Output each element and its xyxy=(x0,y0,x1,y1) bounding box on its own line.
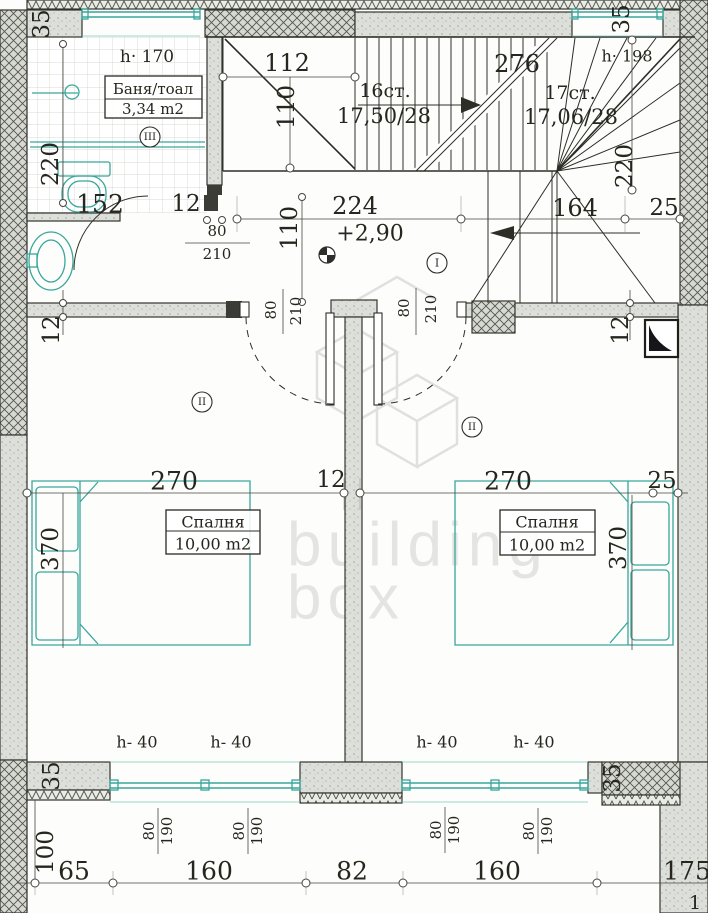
window-h-4: 190 xyxy=(538,817,556,846)
dim-82: 82 xyxy=(336,857,368,886)
hall-jamb-block xyxy=(204,195,218,211)
stairs-headroom: h· 198 xyxy=(601,47,652,66)
bathroom-area: 3,34 m2 xyxy=(122,100,184,118)
bottom-wall-center-pier xyxy=(300,762,402,793)
central-partition-wall xyxy=(345,317,362,762)
bathroom-ceiling-height: h· 170 xyxy=(120,47,174,67)
bed-left xyxy=(32,481,250,645)
dim-160-right: 160 xyxy=(473,857,521,886)
dim-220-bathroom: 220 xyxy=(38,142,64,186)
dim-110-hall: 110 xyxy=(277,206,303,250)
window-w-1: 80 xyxy=(140,821,158,840)
right-wall-mid xyxy=(678,305,708,762)
bedroom-left-name: Спалня xyxy=(181,513,244,532)
door-width-bathroom: 80 xyxy=(207,222,226,240)
insulation-strip-top xyxy=(27,0,695,9)
door-leaf-right xyxy=(374,313,382,405)
window-sill-label-1: h- 40 xyxy=(116,733,157,752)
bathroom-name: Баня/тоал xyxy=(113,80,193,98)
bathroom-zone: III xyxy=(144,131,156,143)
window-w-2: 80 xyxy=(230,821,248,840)
top-wall-center-left xyxy=(205,10,355,37)
bedroom-left-area: 10,00 m2 xyxy=(175,535,251,554)
window-sill-line xyxy=(110,762,300,802)
hall-level: +2,90 xyxy=(336,222,403,247)
left-wall-upper xyxy=(0,10,27,435)
stair-lower-diagonals xyxy=(472,171,655,303)
hall-zone: I xyxy=(435,257,439,270)
dim-270-left: 270 xyxy=(150,467,198,496)
window-h-2: 190 xyxy=(248,817,266,846)
dim-220-stair: 220 xyxy=(612,144,638,188)
door-frame xyxy=(240,302,249,317)
stairs-a-steps: 16ст. xyxy=(359,80,410,102)
dim-100: 100 xyxy=(33,830,59,874)
window-w-3: 80 xyxy=(427,820,445,839)
floor-plan-sheet: building box xyxy=(0,0,708,913)
hall-masonry-pier xyxy=(472,301,515,333)
insulation-bottom-center xyxy=(300,793,402,803)
dim-175: 175 xyxy=(663,857,708,886)
dim-370-left: 370 xyxy=(38,527,64,571)
stair-direction-arrow-down xyxy=(490,226,514,240)
bedroom-left-zone: II xyxy=(198,396,206,408)
door-width-right: 80 xyxy=(395,298,413,317)
stairs-b-rise-run: 17,06/28 xyxy=(524,105,618,129)
dim-35-bottom-left: 35 xyxy=(39,761,65,790)
dim-12-left-wall: 12 xyxy=(39,315,65,344)
dim-152: 152 xyxy=(76,190,124,219)
stair-treads-lower xyxy=(488,171,557,303)
dim-35-top-left: 35 xyxy=(29,9,55,38)
right-wall-upper xyxy=(680,0,708,305)
window-sill-label-2: h- 40 xyxy=(210,733,251,752)
window-h-3: 190 xyxy=(445,816,463,845)
window-sill-label-3: h- 40 xyxy=(416,733,457,752)
stairs-b-steps: 17ст. xyxy=(544,82,595,104)
hall-south-wall-left xyxy=(27,303,240,317)
dim-12-center: 12 xyxy=(316,467,345,493)
sheet-number: 1 xyxy=(689,892,701,913)
door-height-left: 210 xyxy=(287,297,305,326)
window-sill-label-4: h- 40 xyxy=(513,733,554,752)
dim-164: 164 xyxy=(552,194,598,222)
window-sill-line xyxy=(402,762,588,802)
central-t-pier xyxy=(331,300,377,317)
dim-25-hall: 25 xyxy=(649,195,678,221)
dim-370-right: 370 xyxy=(606,526,632,570)
bedroom-right-name: Спалня xyxy=(515,513,578,532)
dim-35-bottom-right: 35 xyxy=(600,763,626,792)
left-wall-lower xyxy=(0,760,27,913)
stairs-a-rise-run: 17,50/28 xyxy=(337,104,431,128)
dim-12-bathroom: 12 xyxy=(171,191,200,217)
sink-basin xyxy=(29,232,73,290)
door-width-left: 80 xyxy=(262,300,280,319)
bedroom-right-area: 10,00 m2 xyxy=(509,536,585,555)
window-top-left xyxy=(82,12,200,17)
dim-276: 276 xyxy=(494,50,540,78)
window-h-1: 190 xyxy=(158,817,176,846)
dim-110-stair: 110 xyxy=(274,85,300,129)
window-bottom-right xyxy=(402,783,588,788)
door-leaf-left xyxy=(326,313,334,405)
door-height-bathroom: 210 xyxy=(203,245,232,263)
floor-plan-drawing: building box xyxy=(0,0,708,913)
door-swing-left xyxy=(246,316,334,404)
bedroom-right-zone: II xyxy=(468,421,476,433)
window-w-4: 80 xyxy=(520,821,538,840)
left-wall-mid xyxy=(0,435,27,760)
partition-end-cap xyxy=(207,185,222,195)
sink-basin-inner xyxy=(37,240,65,282)
top-wall-center-right xyxy=(355,12,572,37)
dim-35-top-right: 35 xyxy=(609,4,635,33)
dim-270-right: 270 xyxy=(484,467,532,496)
dim-160-left: 160 xyxy=(185,857,233,886)
door-height-right: 210 xyxy=(422,295,440,324)
bathroom-stair-partition xyxy=(207,37,222,185)
door-frame xyxy=(457,302,466,317)
insulation-bottom-right xyxy=(602,795,680,805)
dim-224: 224 xyxy=(332,192,378,220)
window-bottom-left xyxy=(110,783,300,788)
dim-12-right-wall: 12 xyxy=(608,315,634,344)
dim-25-bedroom: 25 xyxy=(647,468,676,494)
dim-65: 65 xyxy=(58,857,90,886)
dim-112: 112 xyxy=(264,49,310,77)
